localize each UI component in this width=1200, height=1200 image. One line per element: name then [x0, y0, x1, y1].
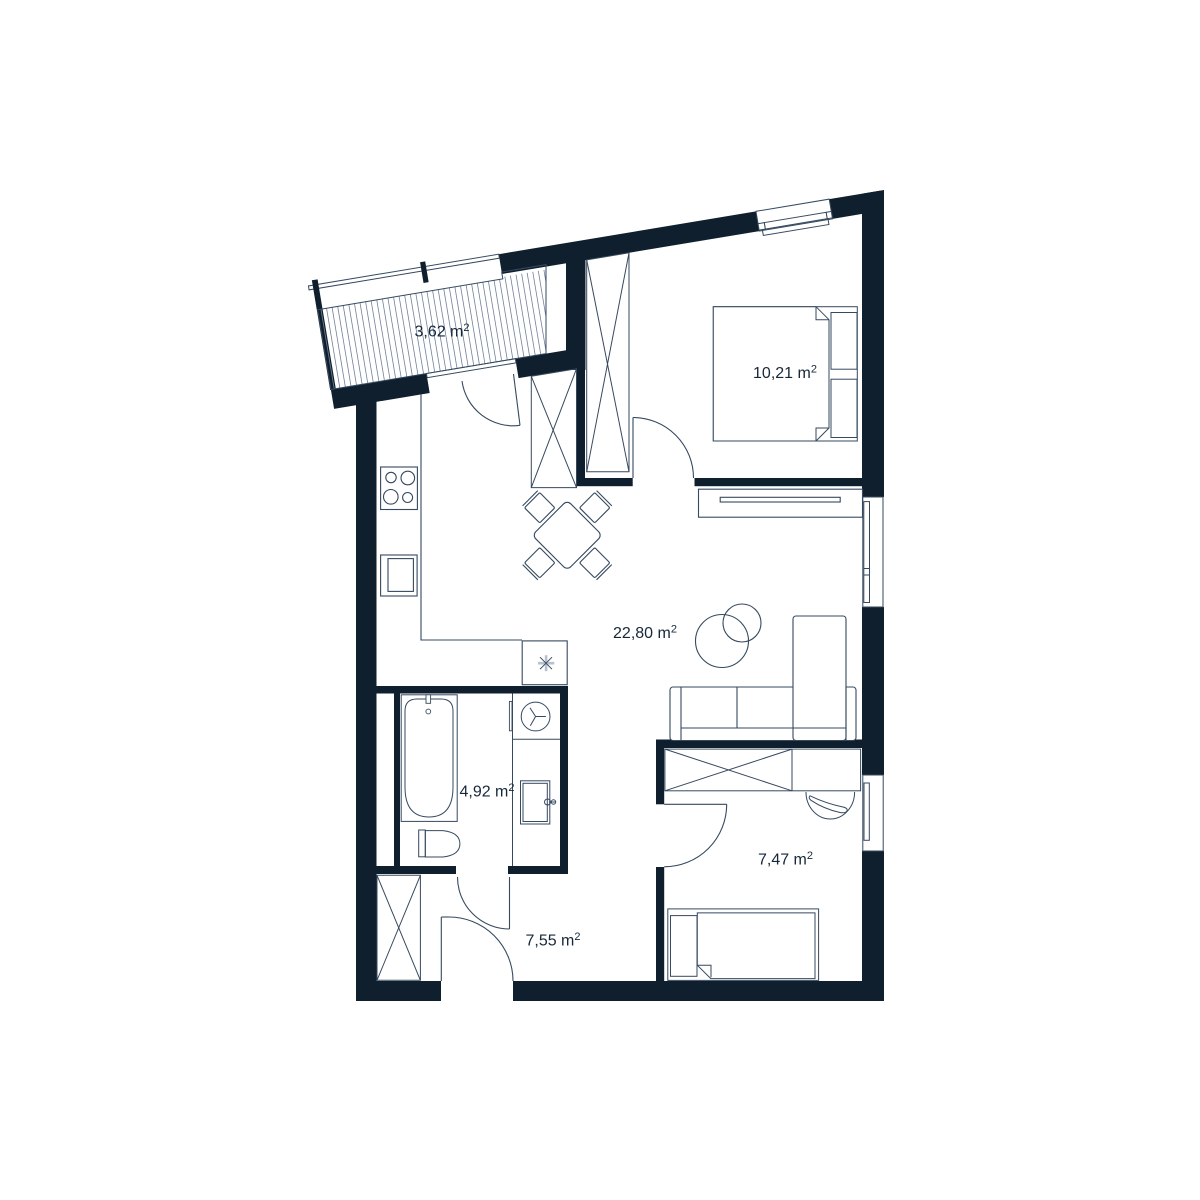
svg-text:10,21 m2: 10,21 m2 [753, 364, 817, 383]
svg-text:7,47 m2: 7,47 m2 [758, 850, 813, 869]
svg-text:22,80 m2: 22,80 m2 [613, 624, 677, 643]
svg-text:3,62 m2: 3,62 m2 [414, 322, 469, 341]
svg-text:7,55 m2: 7,55 m2 [525, 931, 580, 950]
svg-text:4,92 m2: 4,92 m2 [459, 782, 514, 801]
